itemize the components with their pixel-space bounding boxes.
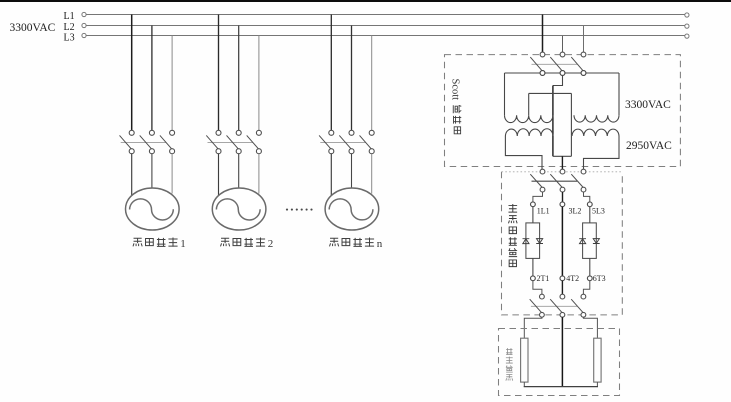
svg-text:3L2: 3L2 <box>569 206 582 215</box>
svg-text:1: 1 <box>180 238 186 250</box>
svg-text:L1: L1 <box>64 11 75 22</box>
svg-text:n: n <box>377 238 383 250</box>
svg-text:4T2: 4T2 <box>566 274 579 283</box>
svg-text:L3: L3 <box>64 33 75 44</box>
svg-text:L2: L2 <box>64 22 75 33</box>
svg-text:2T1: 2T1 <box>537 274 550 283</box>
svg-text:2950VAC: 2950VAC <box>626 140 672 152</box>
svg-text:1L1: 1L1 <box>537 206 550 215</box>
svg-text:Scott: Scott <box>450 79 461 101</box>
svg-text:3300VAC: 3300VAC <box>625 99 671 111</box>
svg-text:6T3: 6T3 <box>593 274 606 283</box>
svg-text:5L3: 5L3 <box>592 206 605 215</box>
svg-text:2: 2 <box>268 238 274 250</box>
svg-text:3300VAC: 3300VAC <box>10 22 56 34</box>
